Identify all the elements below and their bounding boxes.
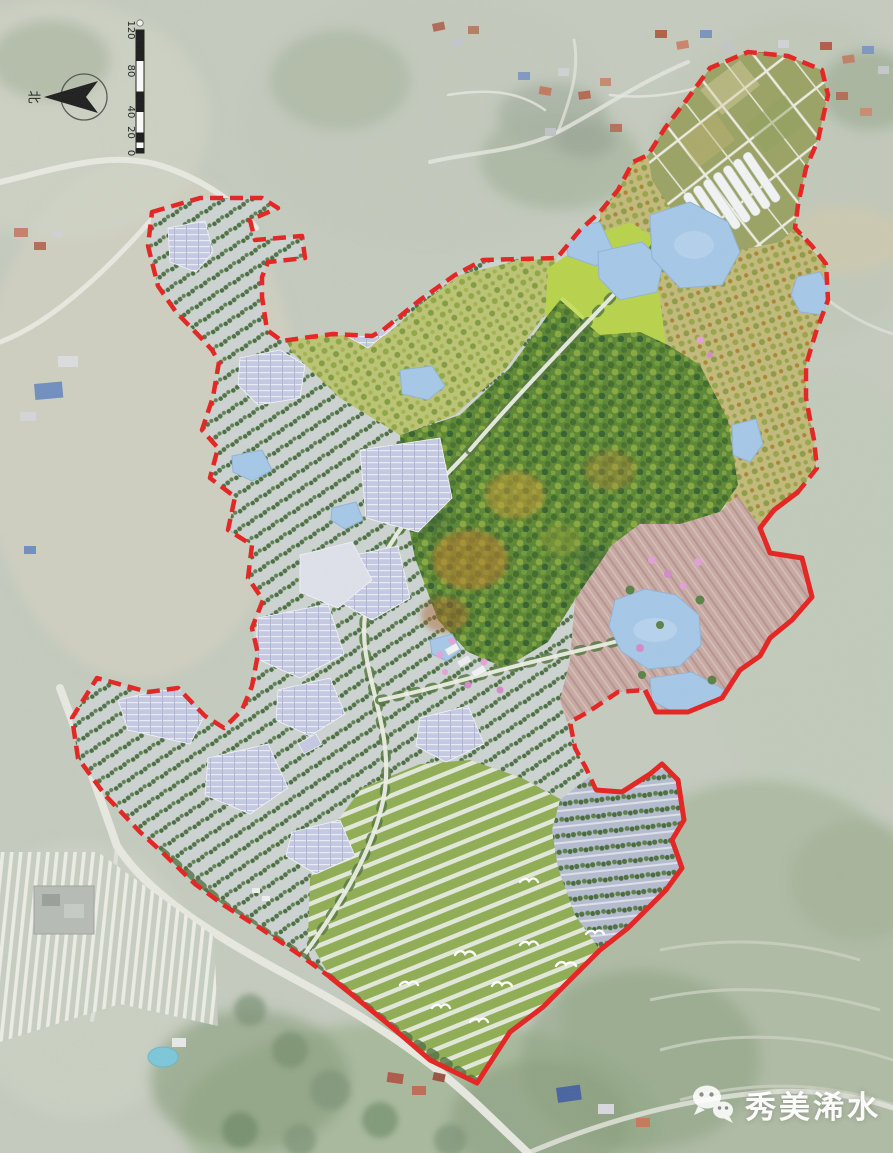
photo-grain-overlay (0, 0, 893, 1153)
aerial-site-plan-map: 北 120 80 40 20 0 (0, 0, 893, 1153)
watermark: 秀美浠水 (690, 1081, 881, 1127)
watermark-text: 秀美浠水 (745, 1082, 881, 1127)
wechat-icon (690, 1081, 736, 1127)
site-plan-page: 北 120 80 40 20 0 秀美浠水 (0, 0, 893, 1153)
